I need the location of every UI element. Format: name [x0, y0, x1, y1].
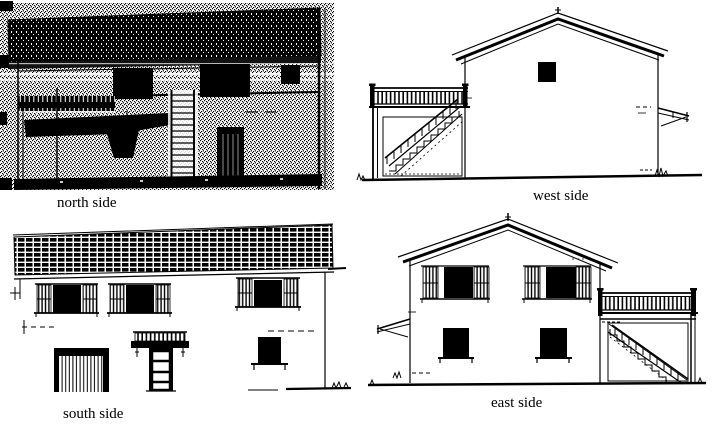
north-balcony-railing [18, 96, 115, 111]
east-lower-window-1 [438, 328, 474, 363]
south-roof [13, 224, 346, 279]
west-awning [658, 108, 689, 126]
east-balcony-railing [597, 288, 698, 316]
west-attic-window [538, 62, 556, 82]
south-small-window [251, 337, 288, 370]
elevation-figure-page: north side west side south side east sid… [0, 0, 723, 446]
south-garage-door [54, 348, 109, 392]
caption-west-side: west side [533, 188, 588, 204]
caption-north-side: north side [57, 195, 117, 211]
east-staircase [608, 324, 688, 384]
east-window-1 [420, 266, 490, 303]
east-ground-line [368, 383, 706, 385]
south-elevation-drawing [10, 223, 355, 395]
north-stair-ladder [168, 90, 198, 184]
elevation-north-panel [0, 0, 340, 195]
south-entrance-door [131, 332, 189, 391]
west-staircase [385, 99, 464, 176]
east-window-2 [522, 266, 592, 303]
west-balcony-railing [369, 84, 470, 109]
west-roof [452, 7, 668, 64]
south-window-3 [235, 278, 301, 311]
east-awning [377, 319, 410, 337]
south-window-1 [34, 284, 99, 317]
east-grass-left [393, 372, 401, 378]
west-elevation-drawing [355, 0, 710, 190]
caption-east-side: east side [491, 395, 542, 411]
elevation-south-panel [10, 223, 355, 395]
east-roof [398, 213, 618, 271]
elevation-east-panel [360, 213, 710, 395]
caption-south-side: south side [63, 406, 123, 422]
east-elevation-drawing [360, 213, 710, 395]
south-window-2 [107, 284, 172, 317]
elevation-west-panel [355, 0, 710, 190]
east-lower-window-2 [535, 328, 572, 363]
north-elevation-drawing [0, 0, 340, 195]
